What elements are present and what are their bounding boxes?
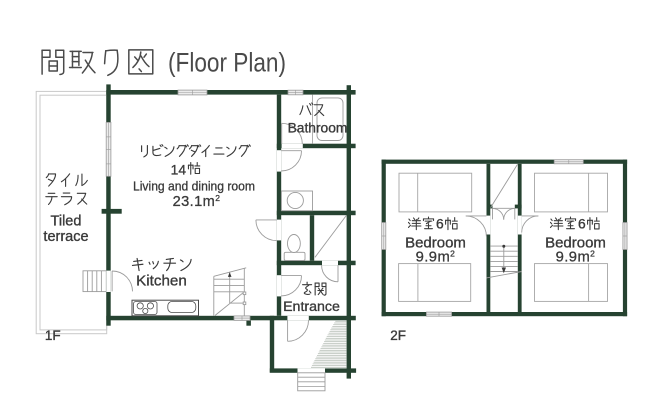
svg-text:Entrance: Entrance: [283, 299, 340, 315]
svg-text:6: 6: [436, 217, 444, 232]
svg-text:terrace: terrace: [43, 229, 88, 245]
svg-text:Tiled: Tiled: [51, 214, 82, 230]
svg-text:Kitchen: Kitchen: [136, 273, 187, 290]
svg-text:9.9m2: 9.9m2: [556, 249, 596, 266]
svg-text:(Floor Plan): (Floor Plan): [168, 48, 286, 78]
svg-text:Living and dining room: Living and dining room: [133, 179, 255, 194]
svg-text:1F: 1F: [45, 328, 61, 343]
svg-text:23.1m2: 23.1m2: [173, 193, 221, 210]
svg-text:14: 14: [171, 163, 187, 178]
svg-text:9.9m2: 9.9m2: [416, 249, 456, 266]
svg-text:Bathroom: Bathroom: [288, 120, 348, 135]
svg-text:6: 6: [578, 217, 586, 232]
svg-text:2F: 2F: [390, 328, 406, 343]
